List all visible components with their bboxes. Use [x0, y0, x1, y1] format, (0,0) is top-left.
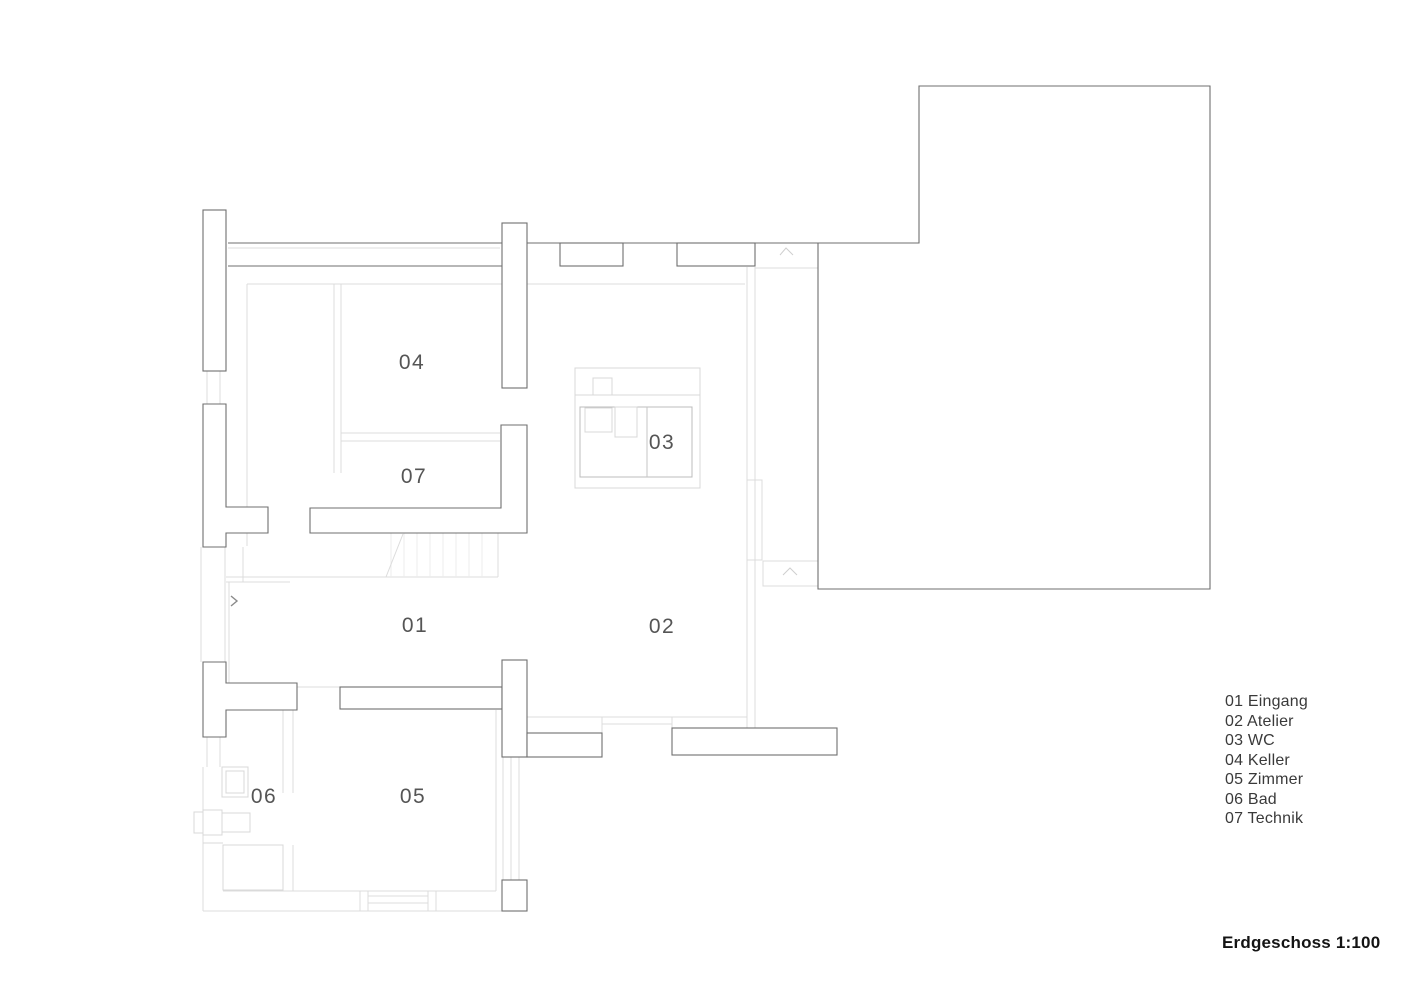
wall-pier — [502, 880, 527, 911]
stairs — [386, 533, 498, 577]
wall-pier — [527, 733, 602, 757]
legend-item: 06 Bad — [1225, 790, 1308, 810]
legend-item: 01 Eingang — [1225, 692, 1308, 712]
legend: 01 Eingang 02 Atelier 03 WC 04 Keller 05… — [1225, 692, 1308, 829]
floor-plan-canvas: 01 02 03 04 05 06 07 01 Eingang 02 Ateli… — [0, 0, 1414, 1000]
wall-pier — [672, 728, 837, 755]
connection-caret-icon — [780, 248, 793, 255]
room-label-02: 02 — [649, 615, 675, 639]
room-label-05: 05 — [400, 785, 426, 809]
drawing-title: Erdgeschoss 1:100 — [1222, 933, 1380, 953]
legend-item: 07 Technik — [1225, 809, 1308, 829]
wall-pier — [340, 687, 502, 709]
wall-pier — [502, 223, 527, 388]
floor-plan-drawing — [0, 0, 1414, 1000]
terrace-outline — [818, 86, 1210, 589]
room-label-01: 01 — [402, 614, 428, 638]
entrance-arrow-icon — [231, 596, 237, 606]
connection-caret-icon — [783, 568, 797, 575]
legend-item: 02 Atelier — [1225, 712, 1308, 732]
wall-pier — [677, 243, 755, 266]
walls-layer — [203, 210, 837, 911]
legend-item: 04 Keller — [1225, 751, 1308, 771]
wall-pier — [560, 243, 623, 266]
room-label-06: 06 — [251, 785, 277, 809]
wall-pier — [203, 210, 226, 371]
wc-fixtures — [575, 368, 700, 488]
room-label-03: 03 — [649, 431, 675, 455]
room-label-04: 04 — [399, 351, 425, 375]
legend-item: 05 Zimmer — [1225, 770, 1308, 790]
room-label-07: 07 — [401, 465, 427, 489]
wall-pier — [203, 404, 268, 547]
legend-item: 03 WC — [1225, 731, 1308, 751]
wall-pier — [502, 660, 527, 757]
